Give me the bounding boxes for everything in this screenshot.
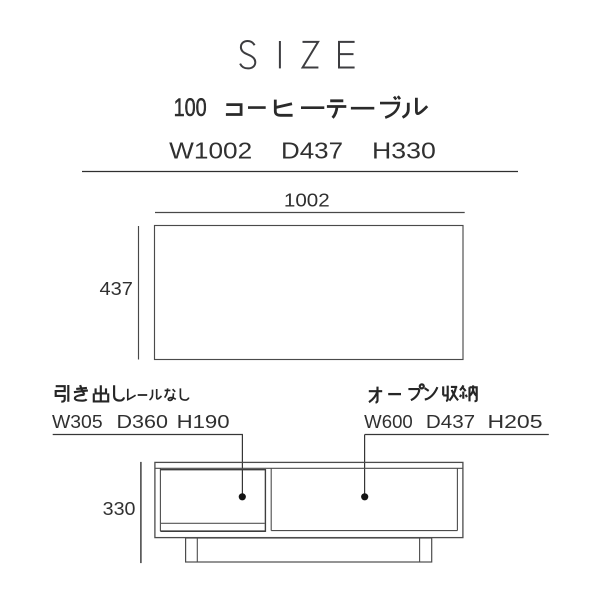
svg-text:H190: H190 (177, 412, 230, 432)
svg-text:D437: D437 (426, 412, 475, 432)
svg-text:W305: W305 (52, 412, 103, 432)
svg-text:D360: D360 (117, 412, 168, 432)
svg-text:437: 437 (100, 278, 133, 299)
svg-text:1002: 1002 (284, 191, 330, 211)
svg-text:330: 330 (103, 498, 136, 519)
svg-text:W600: W600 (364, 412, 413, 432)
svg-text:100: 100 (174, 94, 207, 122)
svg-text:H205: H205 (488, 412, 543, 432)
svg-text:W1002: W1002 (169, 137, 252, 163)
svg-text:H330: H330 (372, 137, 436, 163)
svg-text:D437: D437 (281, 137, 343, 163)
